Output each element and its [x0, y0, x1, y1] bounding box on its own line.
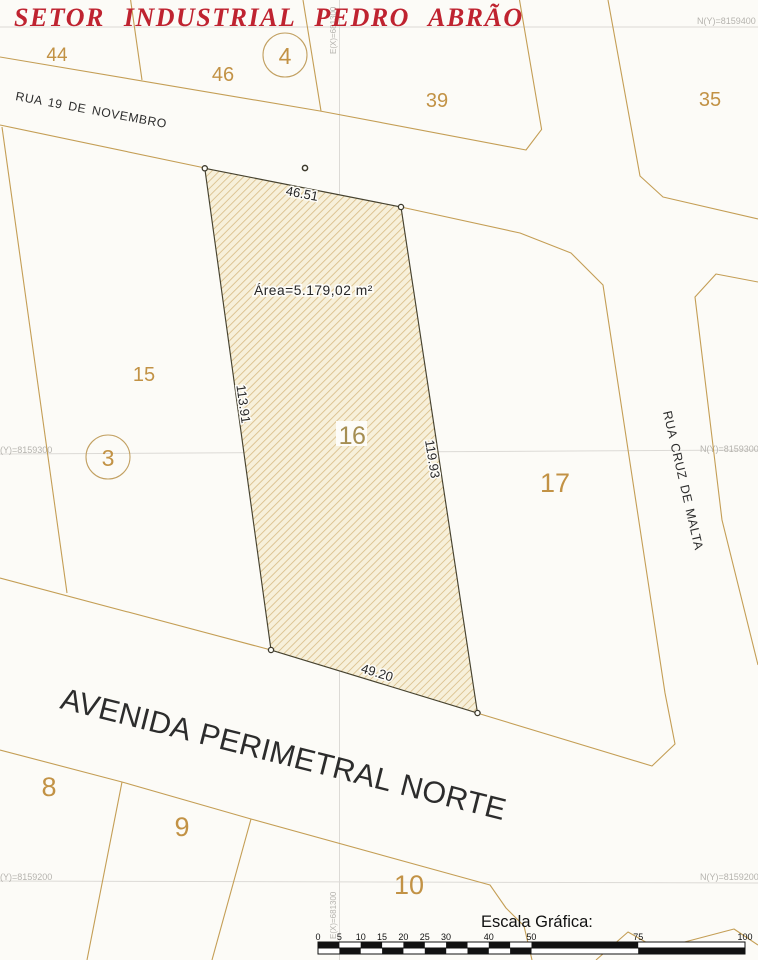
svg-text:Escala Gráfica:: Escala Gráfica: [481, 913, 593, 931]
svg-text:N(Y)=8159300: N(Y)=8159300 [700, 444, 758, 454]
svg-text:Área=5.179,02 m²: Área=5.179,02 m² [254, 282, 373, 298]
svg-text:44: 44 [46, 45, 68, 66]
svg-text:9: 9 [174, 812, 189, 842]
svg-text:5: 5 [337, 932, 342, 942]
svg-text:16: 16 [339, 422, 366, 450]
svg-text:8: 8 [41, 772, 56, 802]
svg-text:40: 40 [484, 932, 494, 942]
svg-text:50: 50 [526, 932, 536, 942]
svg-text:35: 35 [699, 89, 721, 111]
svg-text:46: 46 [212, 64, 234, 86]
svg-text:(Y)=8159200: (Y)=8159200 [0, 872, 52, 882]
svg-text:(Y)=8159300: (Y)=8159300 [0, 445, 52, 455]
svg-text:4: 4 [279, 43, 292, 69]
svg-text:17: 17 [540, 468, 570, 498]
svg-text:10: 10 [394, 870, 424, 900]
svg-text:15: 15 [377, 932, 387, 942]
svg-text:SETOR INDUSTRIAL PEDRO ABRÃO: SETOR INDUSTRIAL PEDRO ABRÃO [14, 3, 524, 32]
svg-text:10: 10 [356, 932, 366, 942]
svg-text:15: 15 [133, 364, 155, 386]
svg-text:20: 20 [398, 932, 408, 942]
svg-text:39: 39 [426, 90, 448, 112]
svg-text:75: 75 [633, 932, 643, 942]
svg-text:100: 100 [737, 932, 752, 942]
svg-text:25: 25 [420, 932, 430, 942]
svg-text:N(Y)=8159400: N(Y)=8159400 [697, 16, 756, 26]
svg-text:N(Y)=8159200: N(Y)=8159200 [700, 872, 758, 882]
svg-text:3: 3 [102, 445, 115, 471]
svg-text:0: 0 [315, 932, 320, 942]
svg-text:30: 30 [441, 932, 451, 942]
